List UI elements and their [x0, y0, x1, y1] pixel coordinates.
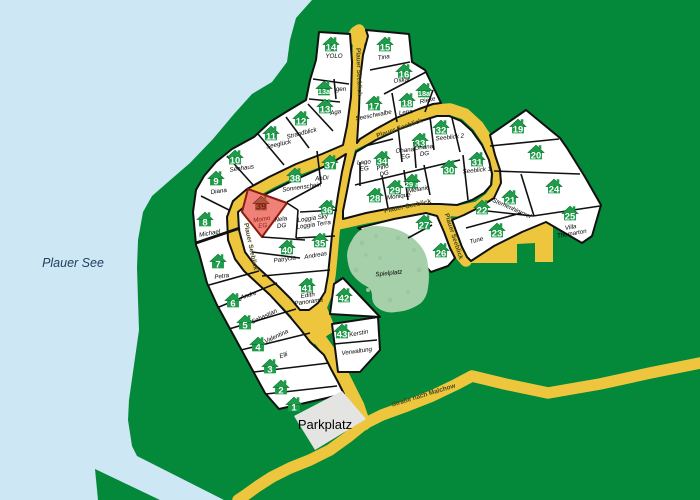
svg-text:EG: EG — [401, 153, 411, 161]
svg-text:5: 5 — [242, 320, 247, 331]
svg-text:35: 35 — [315, 238, 326, 249]
svg-text:gen: gen — [336, 86, 347, 93]
svg-text:22: 22 — [477, 205, 488, 216]
svg-text:43: 43 — [337, 329, 348, 340]
svg-text:YOLO: YOLO — [325, 53, 342, 60]
svg-text:Parkplatz: Parkplatz — [298, 417, 352, 432]
svg-text:39: 39 — [256, 201, 267, 212]
svg-text:Plauer See: Plauer See — [42, 256, 104, 270]
svg-text:DG: DG — [420, 150, 430, 158]
svg-text:19: 19 — [513, 124, 524, 135]
svg-text:13a: 13a — [318, 87, 331, 96]
svg-text:DG: DG — [277, 222, 287, 230]
svg-text:25: 25 — [565, 211, 576, 222]
svg-text:8: 8 — [202, 217, 207, 228]
svg-text:EG: EG — [258, 222, 268, 230]
svg-text:2: 2 — [278, 385, 283, 396]
svg-text:15: 15 — [380, 42, 391, 53]
svg-text:4: 4 — [255, 342, 261, 353]
svg-text:24: 24 — [549, 184, 560, 195]
svg-text:38: 38 — [290, 173, 301, 184]
svg-text:11: 11 — [266, 131, 276, 142]
svg-text:12: 12 — [296, 116, 307, 127]
svg-text:28: 28 — [370, 193, 381, 204]
svg-text:3: 3 — [267, 364, 272, 375]
svg-text:6: 6 — [230, 298, 235, 309]
svg-text:37: 37 — [325, 160, 336, 171]
svg-text:23: 23 — [492, 228, 503, 239]
svg-text:27: 27 — [419, 220, 430, 231]
svg-text:42: 42 — [339, 293, 350, 304]
svg-text:1: 1 — [291, 402, 296, 413]
svg-text:14: 14 — [326, 42, 337, 53]
svg-text:30: 30 — [444, 165, 455, 176]
svg-text:9: 9 — [213, 176, 218, 187]
svg-text:26: 26 — [436, 248, 447, 259]
svg-text:20: 20 — [531, 150, 542, 161]
svg-text:7: 7 — [215, 259, 220, 270]
svg-text:EG: EG — [360, 165, 370, 173]
